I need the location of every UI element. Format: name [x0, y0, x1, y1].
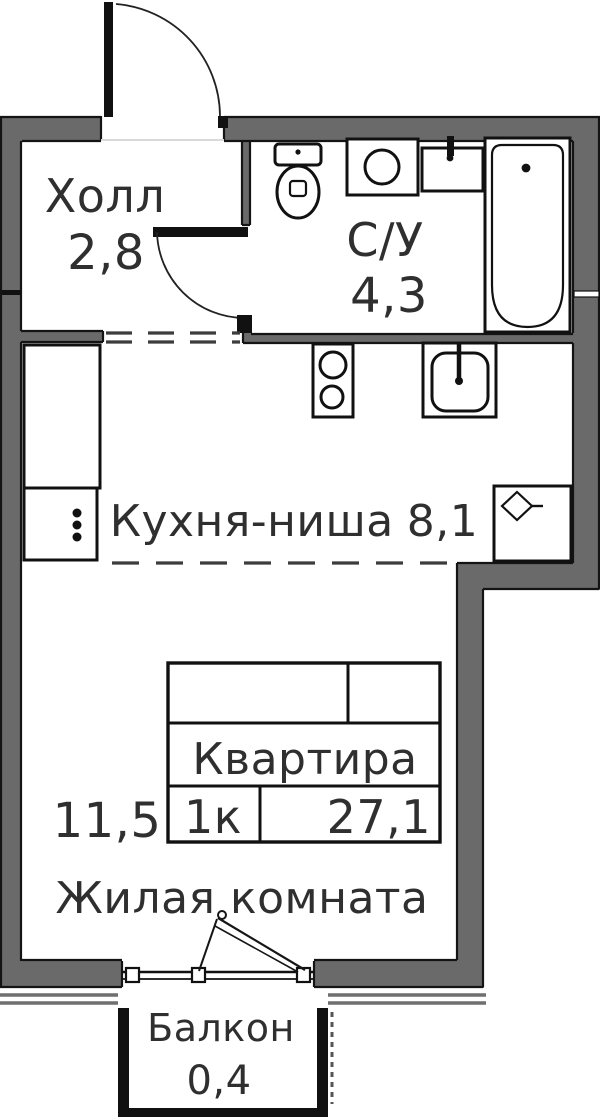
bathroom-door-stub: [237, 315, 252, 333]
living-room-label: Жилая комната: [55, 873, 428, 924]
washbasin-faucet: [447, 136, 454, 156]
living-room-area: 11,5: [53, 793, 162, 849]
washbasin-icon: [422, 136, 483, 191]
balcony-area: 0,4: [186, 1058, 251, 1104]
bathtub-drain: [522, 164, 531, 173]
toilet-seat-detail: [290, 181, 306, 196]
balcony-label: Балкон: [147, 1006, 295, 1050]
kitchen-sink-drain: [455, 377, 463, 385]
stove-icon: [313, 344, 353, 417]
wall-bottom-right: [314, 961, 484, 988]
kitchen-unit-dot-1: [73, 509, 82, 518]
entrance-door-leaf: [104, 2, 113, 117]
vent-shaft-box: [494, 486, 571, 561]
kitchen-label-name: Кухня-ниша: [110, 496, 394, 547]
toilet-button: [295, 149, 300, 154]
balcony-door-leaf-line-1: [218, 918, 305, 970]
floor-plan-drawing: Квартира 1к 27,1 Холл 2,8 С/У 4,3 Кухня-…: [0, 0, 600, 1118]
stove-burner-small: [321, 386, 343, 408]
window-node-left: [126, 968, 139, 982]
wall-tick-right: [574, 291, 599, 297]
apartment-stamp-table: Квартира 1к 27,1: [168, 663, 440, 844]
kitchen-unit-icon: [24, 488, 97, 560]
entrance-door-stub: [218, 116, 228, 128]
entrance-door: [101, 2, 228, 140]
washing-machine-drum: [365, 150, 399, 184]
wall-left: [0, 116, 22, 988]
entrance-door-swing-arc: [116, 4, 220, 116]
stamp-total-area: 27,1: [327, 790, 431, 844]
kitchen-label: Кухня-ниша8,1: [110, 496, 479, 547]
wall-bottom-left: [0, 961, 122, 988]
bathroom-door: [153, 227, 252, 333]
vent-shaft-icon: [494, 486, 571, 561]
stamp-name: Квартира: [192, 734, 417, 785]
washbasin-drain: [447, 155, 454, 162]
bathroom-label: С/У: [346, 213, 423, 267]
bathtub-icon: [485, 138, 570, 332]
hall-label: Холл: [45, 169, 165, 223]
kitchen-sink-icon: [423, 343, 496, 417]
floor-plan-page: Квартира 1к 27,1 Холл 2,8 С/У 4,3 Кухня-…: [0, 0, 600, 1118]
kitchen-unit-dot-3: [73, 533, 82, 542]
balcony-wall-bottom: [118, 1108, 328, 1117]
balcony-wall-left: [118, 1008, 129, 1117]
wall-tick-left: [2, 290, 21, 295]
wall-right: [572, 116, 600, 590]
bathroom-area: 4,3: [350, 268, 428, 324]
toilet-icon: [275, 144, 321, 218]
stove-burner-large: [320, 352, 346, 378]
balcony-door-swing-line: [199, 919, 217, 971]
washing-machine-icon: [347, 139, 418, 195]
kitchen-unit-dot-2: [73, 521, 82, 530]
stamp-rooms-count: 1к: [184, 790, 242, 844]
hall-area: 2,8: [67, 225, 145, 281]
bathroom-door-leaf: [153, 227, 248, 237]
kitchen-cabinet: [24, 345, 100, 488]
bathroom-door-swing-arc: [157, 232, 244, 318]
balcony-door-leaf-line-2: [215, 926, 298, 972]
kitchen-unit-body: [24, 488, 97, 560]
balcony-wall-right: [317, 1008, 328, 1117]
wall-right-lower: [456, 563, 484, 988]
kitchen-label-area: 8,1: [407, 496, 478, 547]
bathtub-basin: [492, 145, 563, 327]
facade-lines: [0, 995, 486, 1003]
